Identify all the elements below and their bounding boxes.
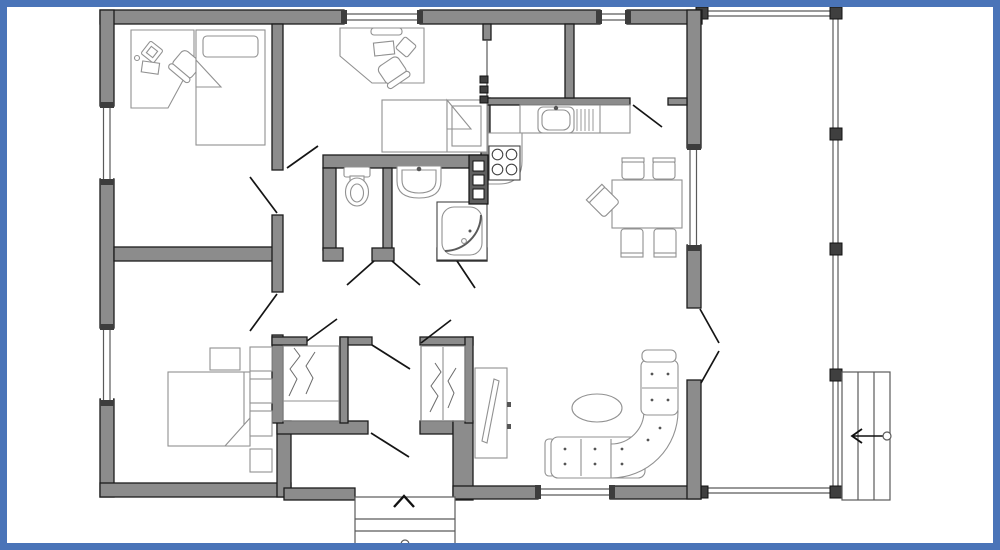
single-bed xyxy=(196,30,265,145)
keyboard xyxy=(141,61,159,74)
floor-plan-svg: Single-storey house floor plan with side… xyxy=(0,0,1000,550)
double-bed xyxy=(168,372,250,446)
radiator xyxy=(480,76,488,103)
water-heater-unit xyxy=(469,155,488,204)
entry-steps xyxy=(355,497,455,548)
toilet xyxy=(344,167,370,206)
window-left-1 xyxy=(100,102,114,185)
dining-chair xyxy=(654,229,676,257)
porch-stairs xyxy=(842,372,891,500)
dining-chair xyxy=(622,158,644,179)
dining-chair xyxy=(621,229,643,257)
keyboard xyxy=(373,41,394,56)
window-top-1 xyxy=(341,10,423,24)
floor-plan-image: Single-storey house floor plan with side… xyxy=(0,0,1000,550)
single-bed xyxy=(382,100,487,152)
room-wc xyxy=(344,167,370,206)
washbasin xyxy=(397,166,441,198)
window-top-2 xyxy=(596,10,631,24)
kitchen-counter xyxy=(520,105,630,133)
window-right xyxy=(687,144,701,251)
tv-cabinet xyxy=(475,368,511,458)
stove xyxy=(489,146,520,180)
window-bottom xyxy=(535,485,615,499)
shower-cabin xyxy=(437,202,487,260)
entry-area xyxy=(355,496,455,548)
stool xyxy=(210,348,240,370)
dining-table xyxy=(612,180,682,228)
window-left-2 xyxy=(100,324,114,406)
dining-chair xyxy=(653,158,675,179)
oval-coffee-table xyxy=(572,394,622,422)
